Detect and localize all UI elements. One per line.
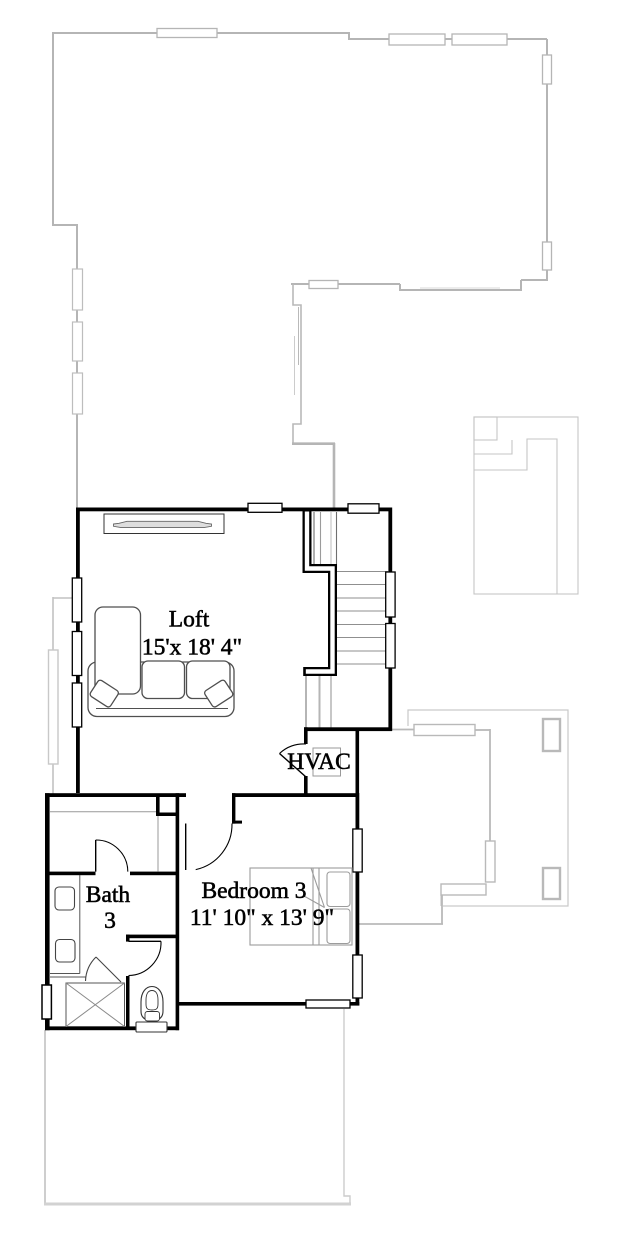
svg-text:15'x 18' 4": 15'x 18' 4" bbox=[142, 635, 242, 661]
svg-text:Bedroom 3: Bedroom 3 bbox=[201, 878, 306, 904]
svg-text:11' 10" x 13' 9": 11' 10" x 13' 9" bbox=[190, 905, 334, 931]
svg-text:Loft: Loft bbox=[169, 607, 210, 633]
svg-text:HVAC: HVAC bbox=[287, 749, 351, 775]
svg-text:3: 3 bbox=[104, 908, 116, 934]
svg-text:Bath: Bath bbox=[86, 882, 131, 908]
